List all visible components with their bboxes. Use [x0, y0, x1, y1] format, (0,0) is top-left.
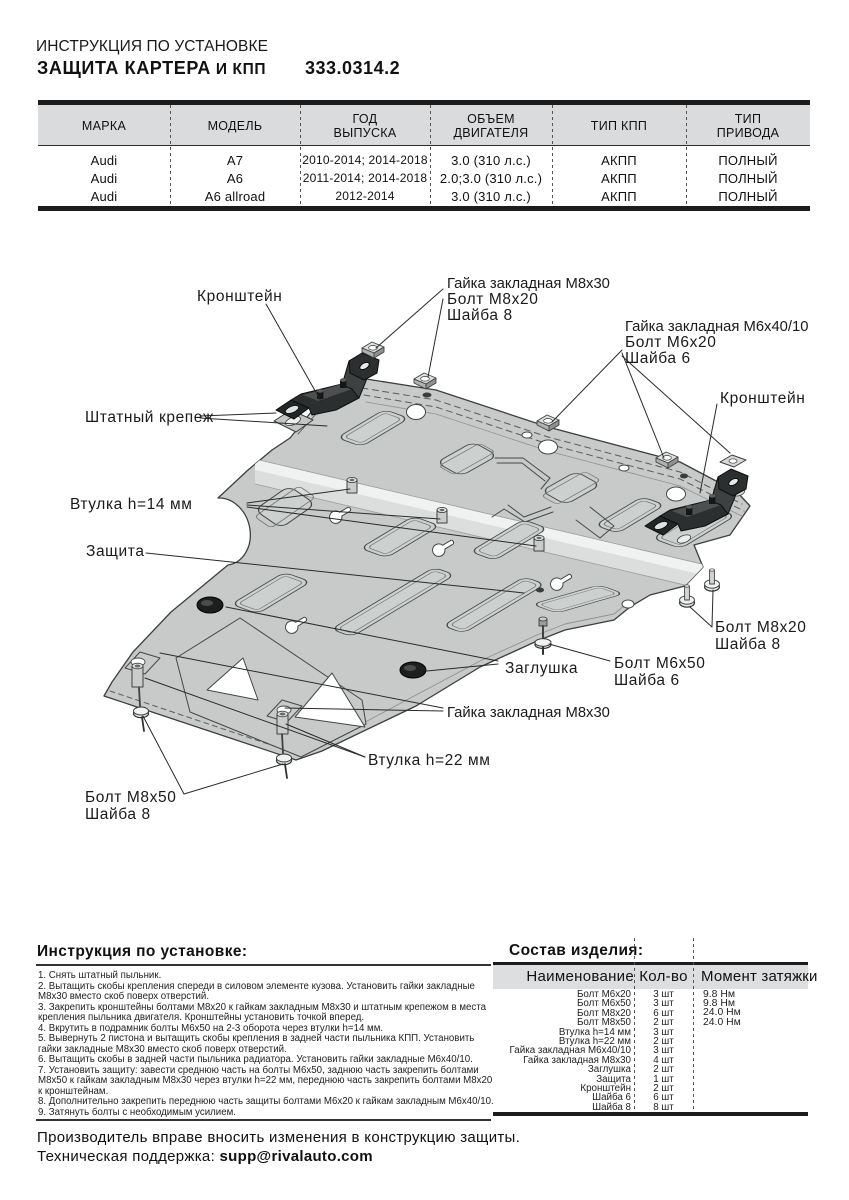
svg-text:Шайба 6: Шайба 6 [625, 350, 691, 367]
svg-text:Кронштейн: Кронштейн [720, 390, 805, 407]
svg-text:Болт М6х20: Болт М6х20 [625, 334, 716, 351]
svg-text:Болт М6х50: Болт М6х50 [614, 655, 705, 672]
svg-text:Шайба 8: Шайба 8 [85, 806, 151, 823]
svg-text:Гайка закладная М8х30: Гайка закладная М8х30 [447, 705, 610, 721]
svg-text:Шайба 8: Шайба 8 [715, 636, 781, 653]
svg-text:Болт М8х50: Болт М8х50 [85, 789, 176, 806]
svg-text:Гайка закладная М6х40/10: Гайка закладная М6х40/10 [625, 319, 808, 335]
svg-text:Шайба 8: Шайба 8 [447, 307, 513, 324]
svg-text:Болт М8х20: Болт М8х20 [715, 619, 806, 636]
svg-text:Защита: Защита [86, 543, 145, 560]
svg-text:Втулка h=22 мм: Втулка h=22 мм [368, 752, 491, 769]
svg-text:Втулка h=14 мм: Втулка h=14 мм [70, 496, 193, 513]
svg-text:Шайба 6: Шайба 6 [614, 672, 680, 689]
svg-text:Болт М8х20: Болт М8х20 [447, 291, 538, 308]
svg-text:Гайка закладная М8х30: Гайка закладная М8х30 [447, 276, 610, 292]
svg-text:Штатный крепеж: Штатный крепеж [85, 409, 214, 426]
svg-text:Кронштейн: Кронштейн [197, 288, 282, 305]
svg-text:Заглушка: Заглушка [505, 660, 578, 677]
